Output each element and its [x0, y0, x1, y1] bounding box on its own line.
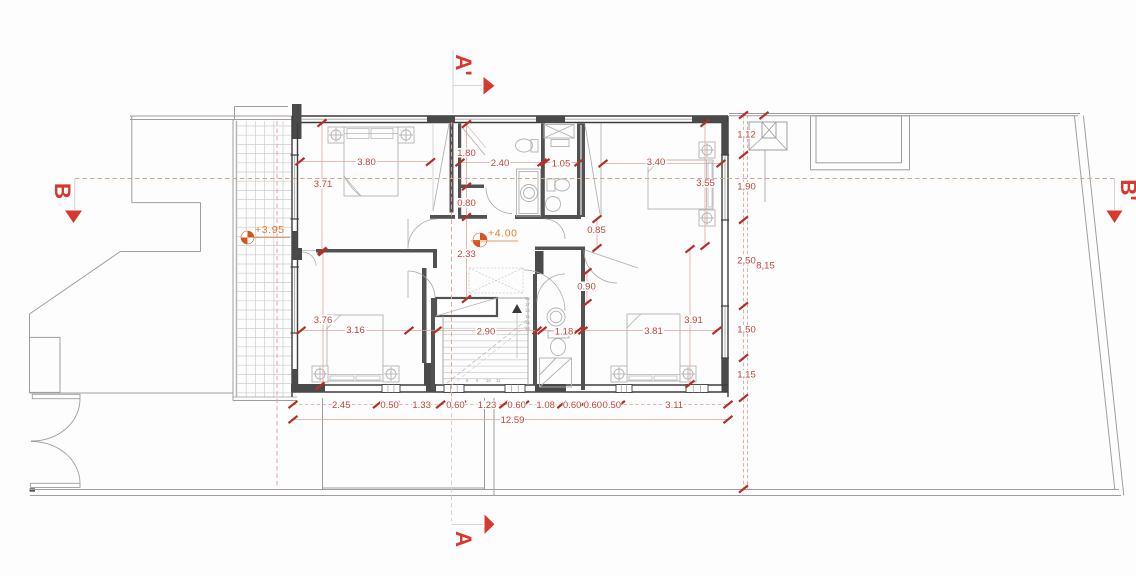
svg-text:18: 18	[525, 296, 530, 301]
svg-text:2,50: 2,50	[737, 256, 756, 267]
svg-text:1.23: 1.23	[478, 400, 497, 411]
svg-text:1,50: 1,50	[737, 325, 756, 336]
svg-text:1.05: 1.05	[552, 159, 571, 170]
svg-text:0.50: 0.50	[603, 400, 622, 411]
svg-text:1.80: 1.80	[457, 148, 476, 159]
svg-text:1,15: 1,15	[737, 370, 756, 381]
svg-text:0.90: 0.90	[577, 282, 596, 293]
svg-text:3.40: 3.40	[647, 157, 666, 168]
svg-text:3.80: 3.80	[357, 157, 376, 168]
svg-text:1.33: 1.33	[412, 400, 431, 411]
svg-text:A': A'	[451, 54, 476, 76]
svg-text:3.11: 3.11	[665, 400, 683, 411]
svg-text:0.60: 0.60	[507, 400, 526, 411]
svg-text:2.90: 2.90	[477, 327, 496, 338]
svg-text:1,90: 1,90	[737, 182, 756, 193]
svg-text:0.80: 0.80	[457, 198, 476, 209]
svg-text:2.45: 2.45	[332, 400, 351, 411]
svg-text:16: 16	[525, 308, 530, 313]
svg-text:1.08: 1.08	[536, 400, 555, 411]
svg-text:3.16: 3.16	[346, 325, 365, 336]
svg-text:11: 11	[496, 378, 501, 383]
svg-text:14: 14	[525, 320, 530, 325]
svg-text:0.50: 0.50	[380, 400, 399, 411]
svg-text:1.18: 1.18	[555, 327, 574, 338]
svg-text:3.76: 3.76	[314, 315, 333, 326]
svg-text:0.60: 0.60	[584, 400, 603, 411]
svg-text:0.60: 0.60	[446, 400, 465, 411]
svg-text:8,15: 8,15	[756, 261, 775, 272]
svg-text:A: A	[451, 531, 476, 547]
svg-text:10: 10	[486, 378, 491, 383]
svg-text:2.33: 2.33	[457, 249, 476, 260]
svg-text:+3.95: +3.95	[255, 224, 285, 236]
svg-text:3.81: 3.81	[644, 326, 663, 337]
svg-text:3.71: 3.71	[314, 179, 333, 190]
svg-text:1,12: 1,12	[737, 130, 756, 141]
svg-text:0.85: 0.85	[587, 225, 606, 236]
svg-text:B': B'	[1116, 179, 1136, 201]
svg-text:3.91: 3.91	[684, 315, 703, 326]
svg-text:0.60: 0.60	[563, 400, 582, 411]
svg-text:B: B	[50, 183, 75, 199]
svg-text:17: 17	[525, 302, 530, 307]
svg-text:12.59: 12.59	[501, 415, 525, 426]
svg-text:2.40: 2.40	[491, 158, 510, 169]
svg-text:3.55: 3.55	[696, 178, 715, 189]
svg-text:+4.00: +4.00	[488, 228, 518, 240]
svg-text:15: 15	[525, 314, 530, 319]
